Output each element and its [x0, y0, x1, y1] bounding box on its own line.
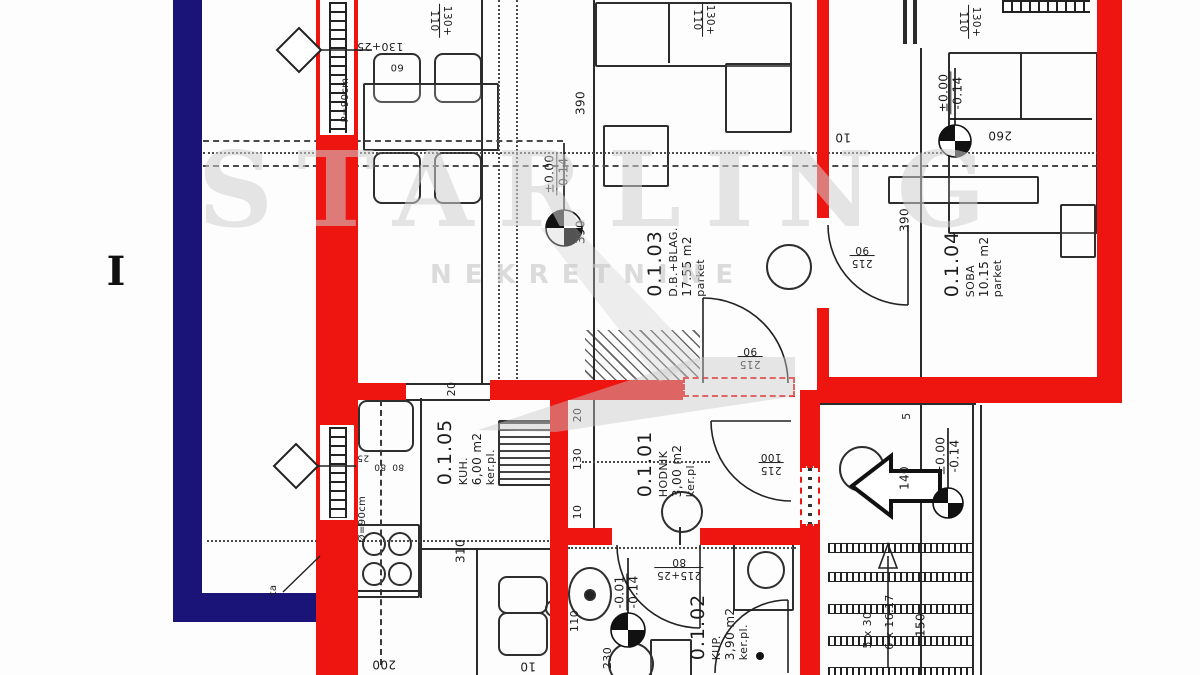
floor-number-label: I — [96, 248, 136, 295]
dim-label: 6 x 16.17 — [884, 594, 896, 650]
dim-label: 260 — [988, 129, 1012, 142]
elevation-label: ±0.00-0.14 — [934, 435, 961, 478]
diamond-marker-icon — [277, 28, 321, 72]
dim-label: 60 — [390, 61, 404, 72]
elevation-label: ±0.00-0.14 — [937, 72, 964, 115]
size-label: 130+110 — [691, 3, 715, 37]
dim-label: 5 — [901, 412, 913, 419]
room-label: 0.1.04SOBA10.15 m2parket — [941, 231, 1005, 297]
dim-label: 130+25 — [357, 40, 404, 52]
dim-label: 10 — [572, 505, 584, 520]
dim-label: 110 — [569, 610, 581, 632]
room-label: 0.1.03D.B.+BLAG.17.55 m2parket — [644, 227, 708, 297]
dim-label: Ø=90cm — [358, 496, 369, 543]
dim-label: 310 — [455, 539, 468, 563]
dim-label: 20 — [572, 408, 584, 423]
size-label: 130+110 — [428, 4, 452, 38]
door-hinge-dot — [756, 652, 764, 660]
dim-label: 80 — [392, 461, 404, 470]
dim-label: 150 — [915, 613, 928, 637]
entrance-arrow-icon — [852, 456, 940, 516]
size-label: 215+2580 — [655, 556, 704, 580]
diamond-marker-icon — [274, 444, 318, 488]
size-label: 21590 — [737, 345, 762, 369]
dim-label: 25 — [357, 452, 369, 461]
dim-label: 20 — [446, 382, 458, 397]
elevation-label: -0.01-0.14 — [613, 573, 640, 610]
room-label: 0.1.05KUH.6,00 m2ker.pl. — [434, 419, 498, 485]
label-leader — [283, 556, 320, 592]
dim-label: 390 — [899, 208, 912, 232]
dim-label: 140 — [899, 466, 912, 490]
dim-label: 390 — [575, 220, 588, 244]
dim-label: 80 — [374, 461, 386, 470]
size-label: 215100 — [758, 451, 783, 475]
dim-label: 200 — [372, 658, 396, 671]
size-label: 130+110 — [957, 5, 981, 39]
room-label: 0.1.01HODNIK3,00 m2ker.pl. — [634, 431, 698, 497]
dim-label: P=90cm — [341, 78, 352, 123]
dim-label: 390 — [575, 91, 588, 115]
dim-label: 230 — [602, 647, 614, 669]
room-label: 0.1.02KUP.3,90 m2ker.pl. — [687, 594, 751, 660]
plan-annotations — [0, 0, 1200, 675]
dim-label: 5 x 30 — [862, 612, 874, 649]
dim-label: 130 — [572, 448, 584, 470]
dim-label: 10 — [520, 660, 536, 673]
floor-plan-canvas: I STARLING NEKRETNINE 130+2560P=90cm3903… — [0, 0, 1200, 675]
dim-label: 10 — [835, 131, 851, 144]
door-arc — [703, 298, 788, 383]
size-label: 21590 — [849, 244, 874, 268]
elevation-label: ±0.00-0.14 — [543, 153, 570, 196]
dim-label: ta — [269, 585, 280, 596]
